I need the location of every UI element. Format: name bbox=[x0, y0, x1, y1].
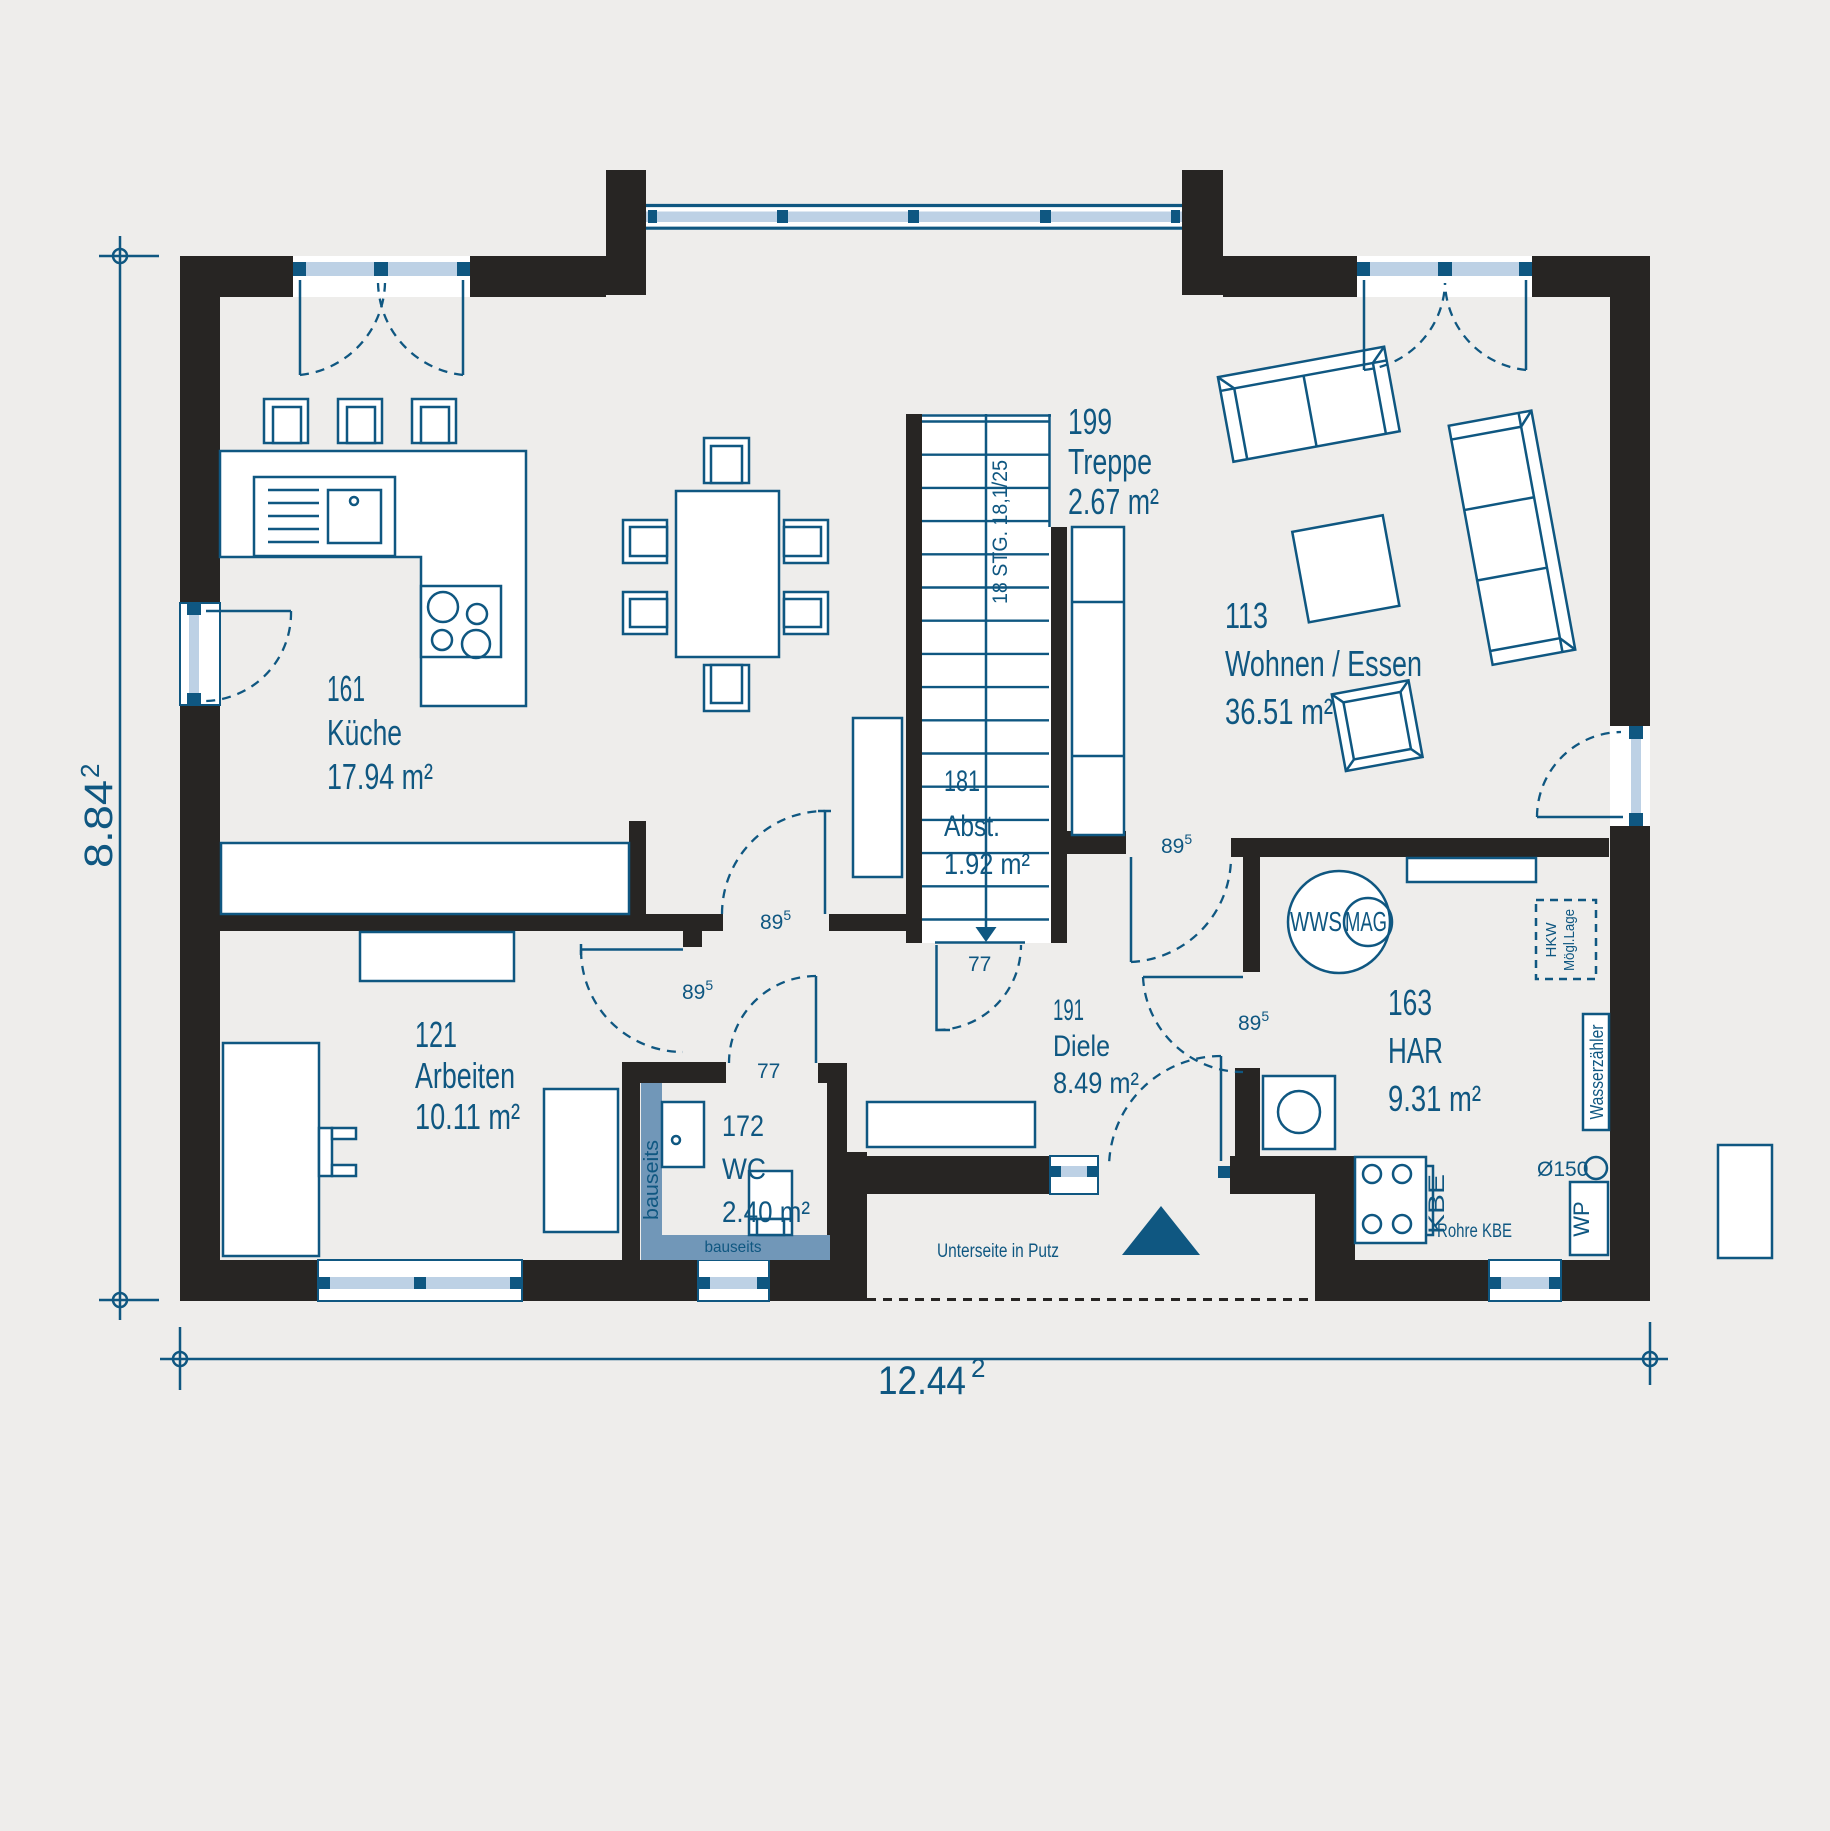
svg-text:77: 77 bbox=[757, 1060, 780, 1083]
svg-text:Treppe: Treppe bbox=[1068, 441, 1152, 482]
svg-text:KBE: KBE bbox=[1424, 1174, 1449, 1234]
svg-text:MAG: MAG bbox=[1345, 906, 1387, 937]
svg-text:HAR: HAR bbox=[1388, 1030, 1443, 1071]
svg-text:77: 77 bbox=[968, 953, 991, 976]
svg-text:Wasserzähler: Wasserzähler bbox=[1587, 1025, 1607, 1120]
svg-text:10.11 m²: 10.11 m² bbox=[415, 1096, 520, 1137]
svg-text:8.84: 8.84 bbox=[77, 780, 121, 868]
svg-text:172: 172 bbox=[722, 1110, 764, 1143]
svg-text:2.40 m²: 2.40 m² bbox=[722, 1196, 810, 1229]
svg-text:Mögl.Lage: Mögl.Lage bbox=[1561, 909, 1578, 971]
svg-text:Unterseite in Putz: Unterseite in Putz bbox=[937, 1241, 1059, 1262]
svg-text:161: 161 bbox=[327, 668, 365, 709]
svg-text:Abst.: Abst. bbox=[944, 810, 1000, 843]
svg-text:17.94 m²: 17.94 m² bbox=[327, 756, 433, 797]
svg-text:2: 2 bbox=[971, 1353, 985, 1383]
svg-text:WP: WP bbox=[1569, 1201, 1594, 1236]
svg-text:WWS: WWS bbox=[1290, 906, 1342, 937]
svg-text:2.67 m²: 2.67 m² bbox=[1068, 481, 1159, 522]
svg-text:9.31 m²: 9.31 m² bbox=[1388, 1078, 1481, 1119]
svg-text:Küche: Küche bbox=[327, 712, 402, 753]
svg-text:18 STG. 18,1/25: 18 STG. 18,1/25 bbox=[989, 460, 1012, 604]
svg-text:163: 163 bbox=[1388, 982, 1432, 1023]
svg-text:Diele: Diele bbox=[1053, 1030, 1110, 1063]
svg-text:2: 2 bbox=[75, 764, 105, 778]
svg-text:Arbeiten: Arbeiten bbox=[415, 1055, 515, 1096]
svg-text:Wohnen / Essen: Wohnen / Essen bbox=[1225, 643, 1422, 684]
svg-text:8.49 m²: 8.49 m² bbox=[1053, 1067, 1139, 1100]
svg-text:121: 121 bbox=[415, 1014, 457, 1055]
svg-text:bauseits: bauseits bbox=[641, 1140, 663, 1220]
svg-text:36.51 m²: 36.51 m² bbox=[1225, 691, 1333, 732]
svg-text:191: 191 bbox=[1053, 994, 1084, 1027]
svg-text:1.92 m²: 1.92 m² bbox=[944, 848, 1030, 881]
svg-text:Ø150: Ø150 bbox=[1537, 1158, 1588, 1181]
svg-text:HKW: HKW bbox=[1543, 922, 1560, 958]
svg-text:199: 199 bbox=[1068, 401, 1112, 442]
svg-text:113: 113 bbox=[1225, 595, 1268, 636]
svg-text:WC: WC bbox=[722, 1153, 766, 1186]
svg-text:12.44: 12.44 bbox=[878, 1359, 966, 1403]
svg-text:181: 181 bbox=[944, 765, 980, 798]
svg-text:bauseits: bauseits bbox=[705, 1239, 762, 1256]
